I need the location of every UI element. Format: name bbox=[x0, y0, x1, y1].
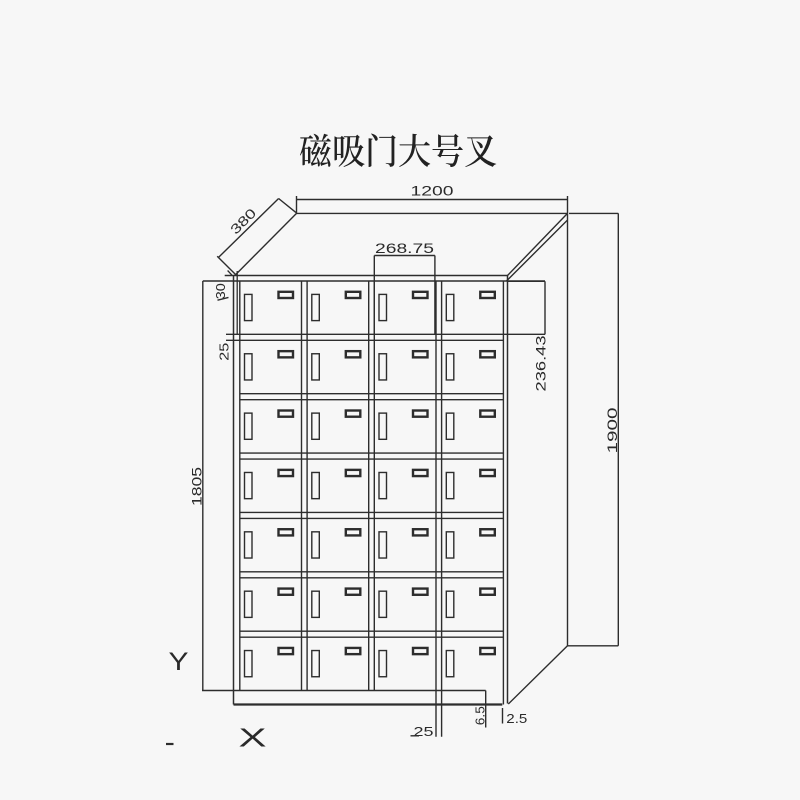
svg-text:1900: 1900 bbox=[604, 407, 620, 453]
svg-text:6.5: 6.5 bbox=[473, 706, 488, 725]
svg-text:25: 25 bbox=[414, 724, 434, 739]
svg-text:236.43: 236.43 bbox=[534, 336, 549, 392]
svg-text:268.75: 268.75 bbox=[375, 241, 434, 256]
svg-text:1805: 1805 bbox=[190, 467, 205, 506]
svg-text:1200: 1200 bbox=[411, 184, 454, 199]
svg-text:2.5: 2.5 bbox=[506, 711, 527, 726]
svg-text:X: X bbox=[239, 723, 267, 753]
svg-text:Y: Y bbox=[169, 648, 189, 676]
svg-text:30: 30 bbox=[213, 283, 228, 299]
svg-text:25: 25 bbox=[217, 343, 232, 361]
